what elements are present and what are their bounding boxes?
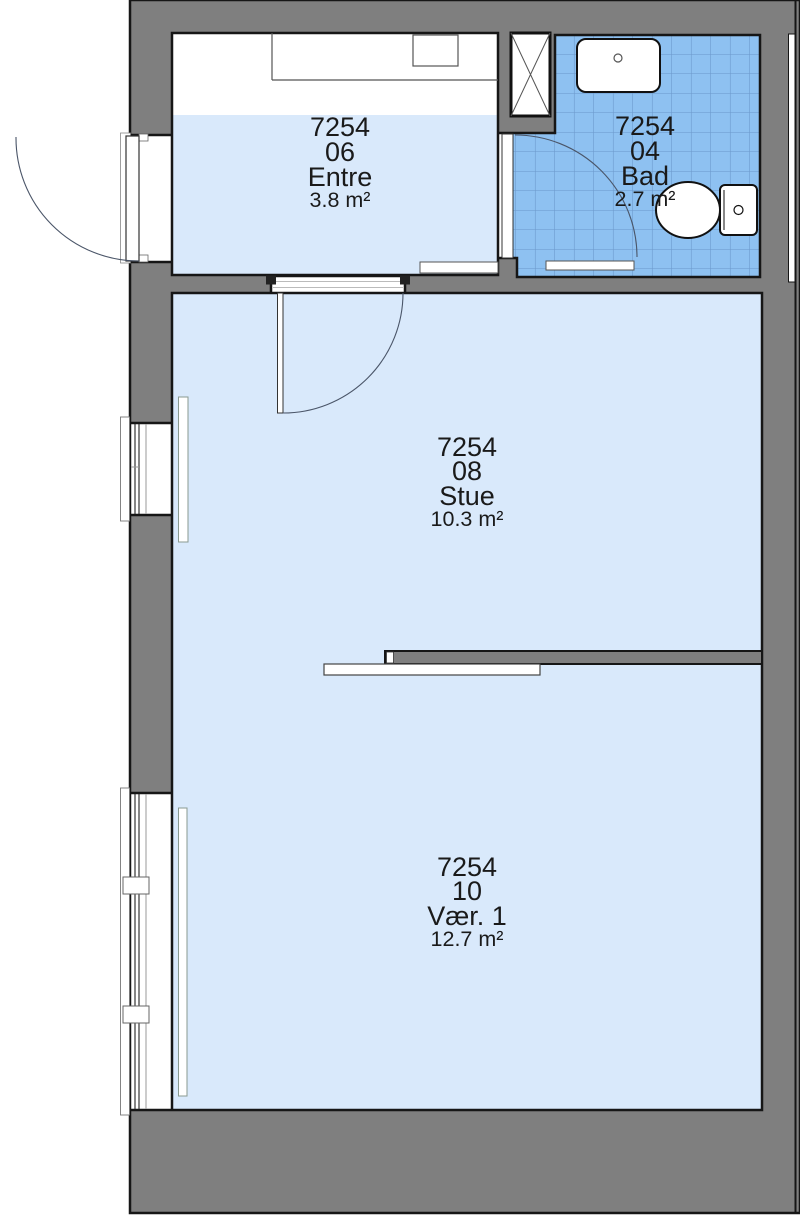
right-gap-strip [789, 34, 796, 282]
stue-door-stop-right [400, 276, 410, 285]
bad-area: 2.7 m² [615, 187, 676, 211]
washbasin [577, 39, 660, 92]
entrance-door-leaf [126, 136, 139, 261]
floor-plan: 7254 06 Entre 3.8 m² 7254 04 Bad 2.7 m² … [0, 0, 800, 1216]
stue-area: 10.3 m² [431, 507, 504, 531]
kitchen-sink [413, 35, 458, 66]
room-label-vaer1: 7254 10 Vær. 1 12.7 m² [427, 852, 507, 951]
vaer1-area: 12.7 m² [431, 927, 504, 951]
sliding-door-panel [324, 664, 540, 675]
radiator-entre [420, 262, 498, 273]
washbasin-bowl [577, 39, 660, 92]
window-stue-outer-sill [121, 417, 130, 521]
entrance-door-frame-bottom [139, 255, 148, 262]
toilet-flush-button-icon [734, 206, 743, 215]
radiator-vaer [179, 808, 188, 1096]
bathroom-door-leaf [502, 134, 513, 258]
room-label-entre: 7254 06 Entre 3.8 m² [308, 112, 373, 212]
partition-pocket-notch [387, 652, 394, 663]
window-vaer-mullion-bottom [123, 1006, 149, 1023]
room-label-stue: 7254 08 Stue 10.3 m² [431, 432, 504, 531]
room-label-bad: 7254 04 Bad 2.7 m² [615, 111, 676, 211]
radiator-bad [546, 261, 634, 270]
radiator-stue [179, 397, 189, 542]
duct-shaft [511, 33, 550, 116]
entrance-door-frame-top [139, 134, 148, 141]
stue-door-leaf [278, 293, 284, 413]
stue-vaer-floor [172, 293, 762, 1110]
entre-area: 3.8 m² [310, 188, 371, 212]
partition-wall-bar [385, 651, 762, 664]
stue-door-stop-left [266, 276, 276, 285]
washbasin-drain-icon [614, 54, 622, 62]
window-vaer-mullion-top [123, 877, 149, 894]
window-vaer-outer-sill [121, 788, 130, 1115]
